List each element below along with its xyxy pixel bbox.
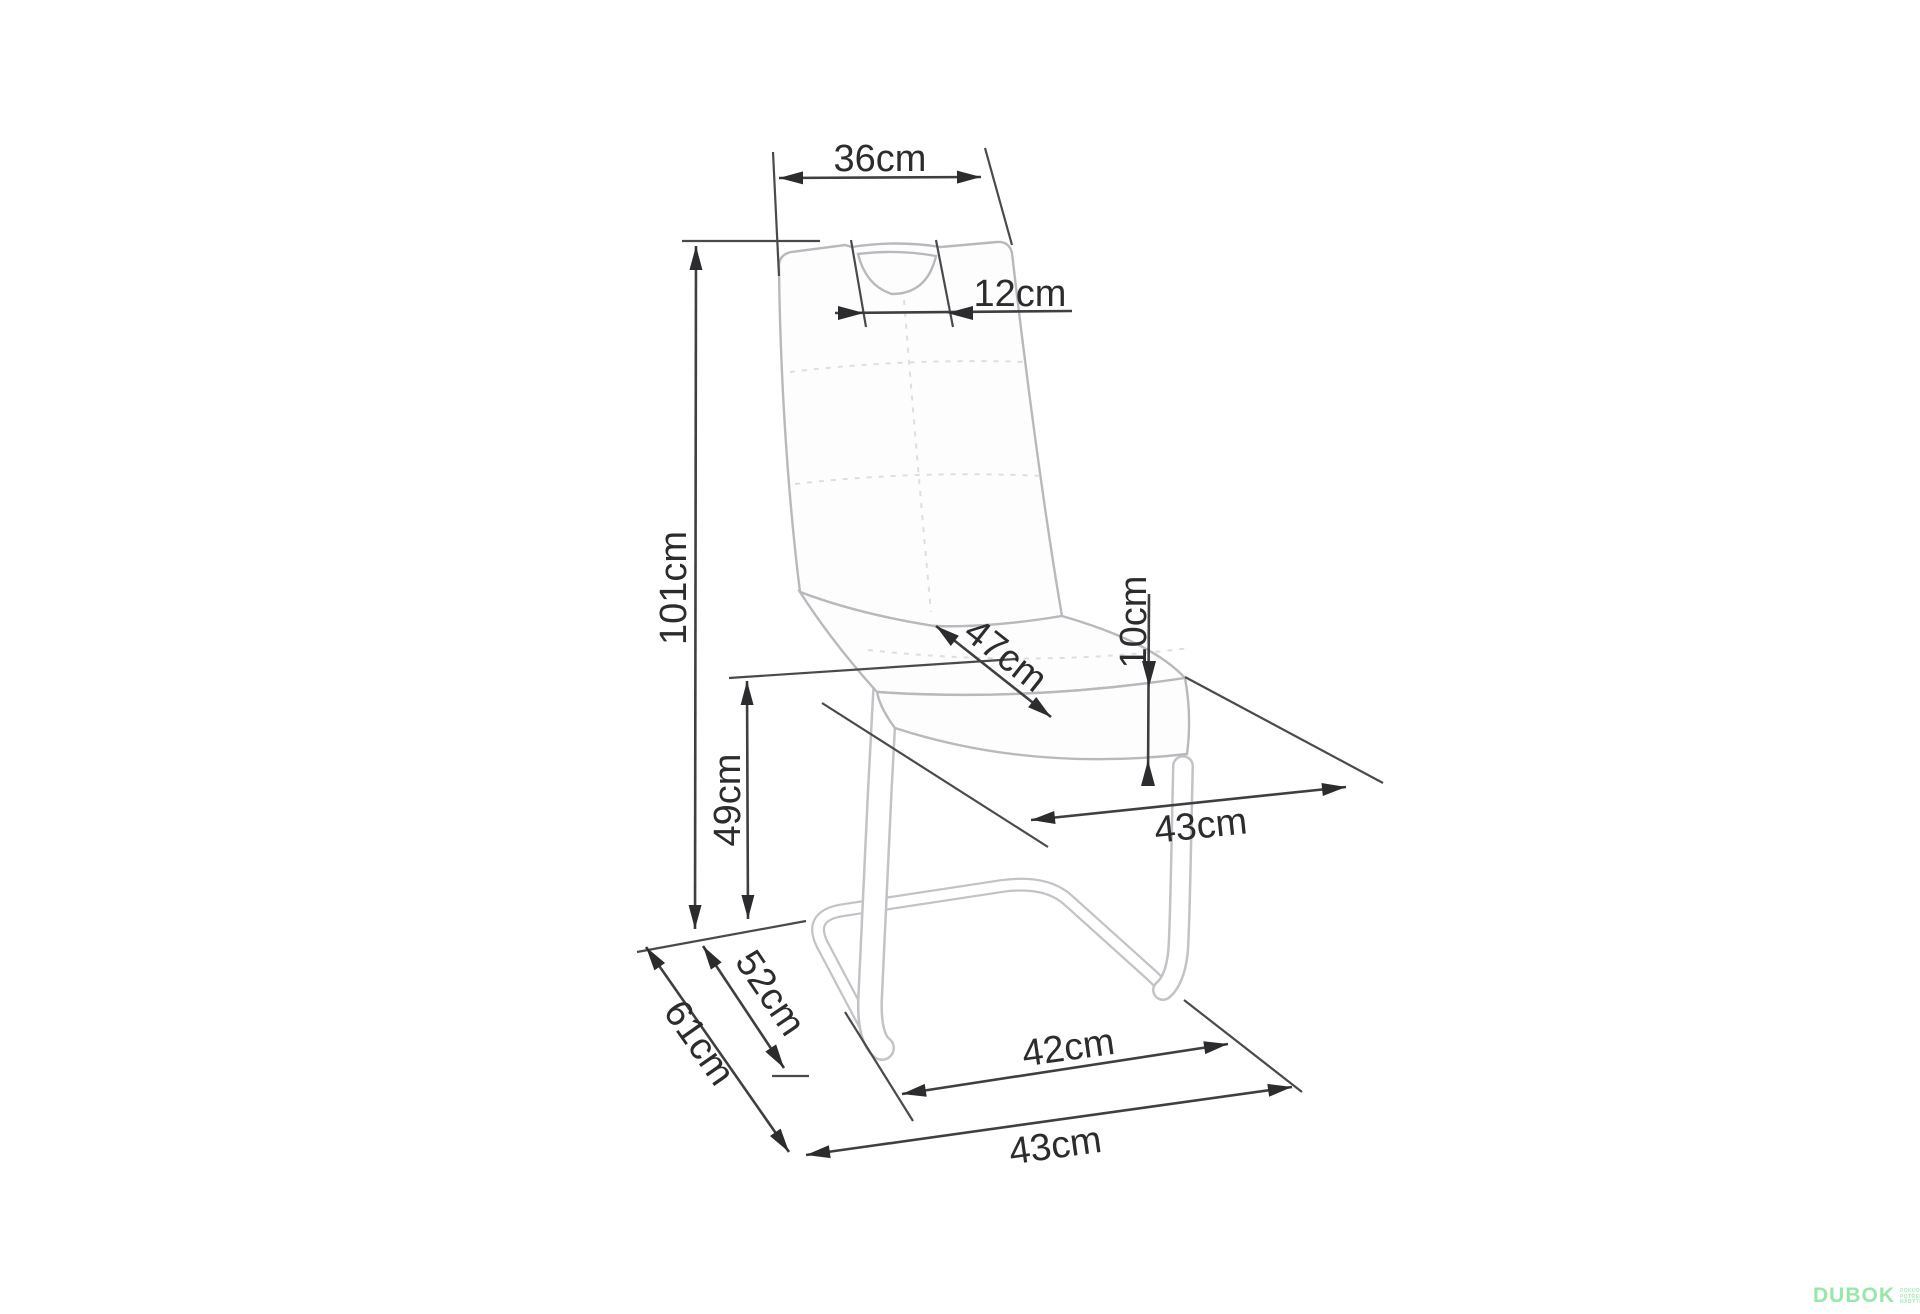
dimension-annotations: 36cm 12cm 101cm 49cm 47cm 10cm 43cm 52cm… (637, 138, 1383, 1173)
dim-total-height (695, 246, 696, 929)
ext-36-left (773, 152, 779, 276)
label-seat-height: 49cm (707, 754, 749, 847)
chair-drawing-svg: 36cm 12cm 101cm 49cm 47cm 10cm 43cm 52cm… (0, 0, 1920, 1314)
ext-base-right (1184, 1000, 1302, 1092)
label-base-runner-length: 52cm (727, 943, 814, 1044)
label-handle-width: 12cm (974, 273, 1067, 315)
ext-seatwidth-right (1185, 677, 1383, 783)
watermark-tagline-line: NÁBYTEK (1900, 1300, 1920, 1306)
seat-thickness-arrow-bottom (1141, 760, 1155, 786)
ext-36-right (985, 148, 1012, 245)
label-base-inner-width: 42cm (1019, 1021, 1117, 1076)
label-total-height: 101cm (653, 531, 695, 645)
watermark: DUBOK POKUD POTŘEBUJETE NÁBYTEK (1813, 1286, 1920, 1306)
label-base-total-depth: 61cm (655, 993, 743, 1093)
label-base-total-width: 43cm (1006, 1119, 1104, 1174)
label-seat-width: 43cm (1152, 800, 1249, 851)
dimension-diagram: 36cm 12cm 101cm 49cm 47cm 10cm 43cm 52cm… (0, 0, 1920, 1314)
label-backrest-top-width: 36cm (834, 138, 927, 180)
watermark-tagline: POKUD POTŘEBUJETE NÁBYTEK (1900, 1286, 1920, 1306)
ext-floor-line (637, 921, 806, 952)
label-seat-thickness: 10cm (1113, 576, 1155, 669)
watermark-brand: DUBOK (1813, 1286, 1895, 1306)
